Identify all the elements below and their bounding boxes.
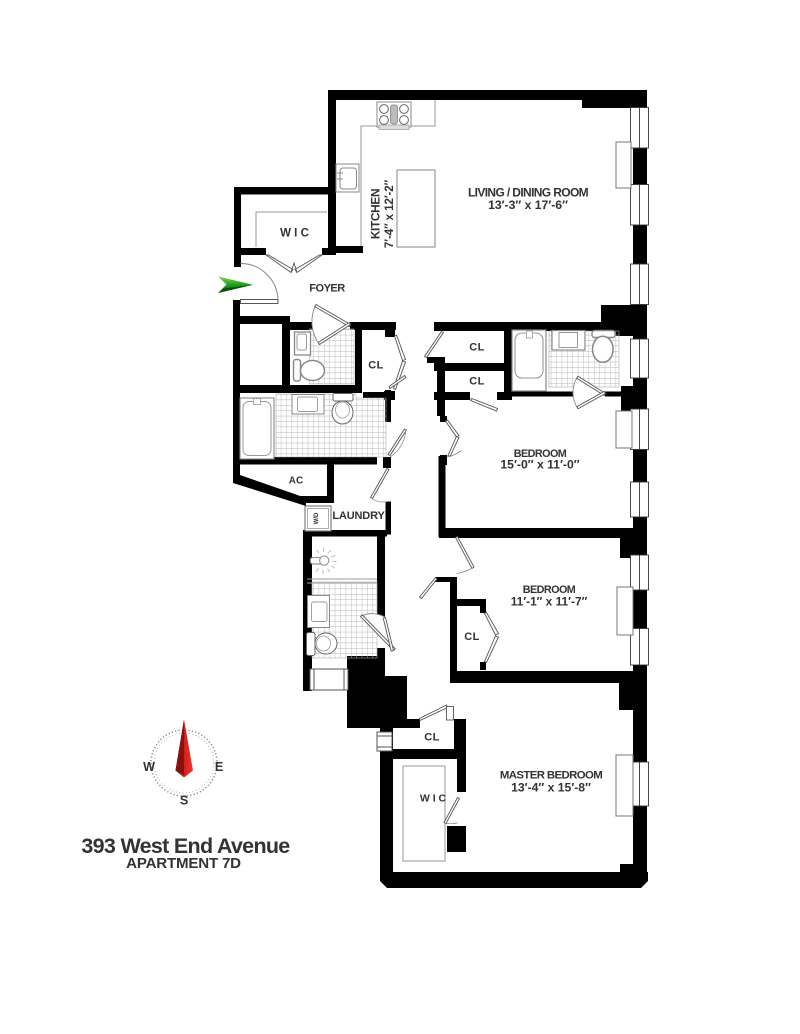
svg-text:KITCHEN: KITCHEN [369, 189, 383, 239]
svg-text:W I C: W I C [420, 793, 447, 805]
svg-text:FOYER: FOYER [309, 283, 345, 295]
svg-text:13′-3″ x 17′-6″: 13′-3″ x 17′-6″ [488, 198, 568, 212]
svg-text:AC: AC [289, 476, 304, 487]
svg-text:W I C: W I C [280, 228, 309, 240]
svg-text:W/D: W/D [314, 512, 320, 524]
svg-text:CL: CL [464, 631, 479, 643]
svg-text:11′-1″ x 11′-7″: 11′-1″ x 11′-7″ [511, 595, 588, 609]
svg-text:E: E [215, 760, 223, 774]
svg-text:7′-4″ x 12′-2″: 7′-4″ x 12′-2″ [383, 179, 396, 248]
svg-text:APARTMENT 7D: APARTMENT 7D [126, 855, 241, 872]
svg-text:13′-4″ x 15′-8″: 13′-4″ x 15′-8″ [511, 781, 591, 795]
svg-text:LAUNDRY: LAUNDRY [332, 510, 385, 522]
svg-text:CL: CL [368, 360, 383, 372]
svg-text:CL: CL [469, 342, 484, 354]
svg-text:S: S [180, 794, 188, 808]
svg-text:CL: CL [469, 376, 484, 388]
svg-text:CL: CL [424, 732, 439, 744]
svg-text:15′-0″ x 11′-0″: 15′-0″ x 11′-0″ [500, 458, 579, 472]
svg-text:W: W [143, 760, 155, 774]
